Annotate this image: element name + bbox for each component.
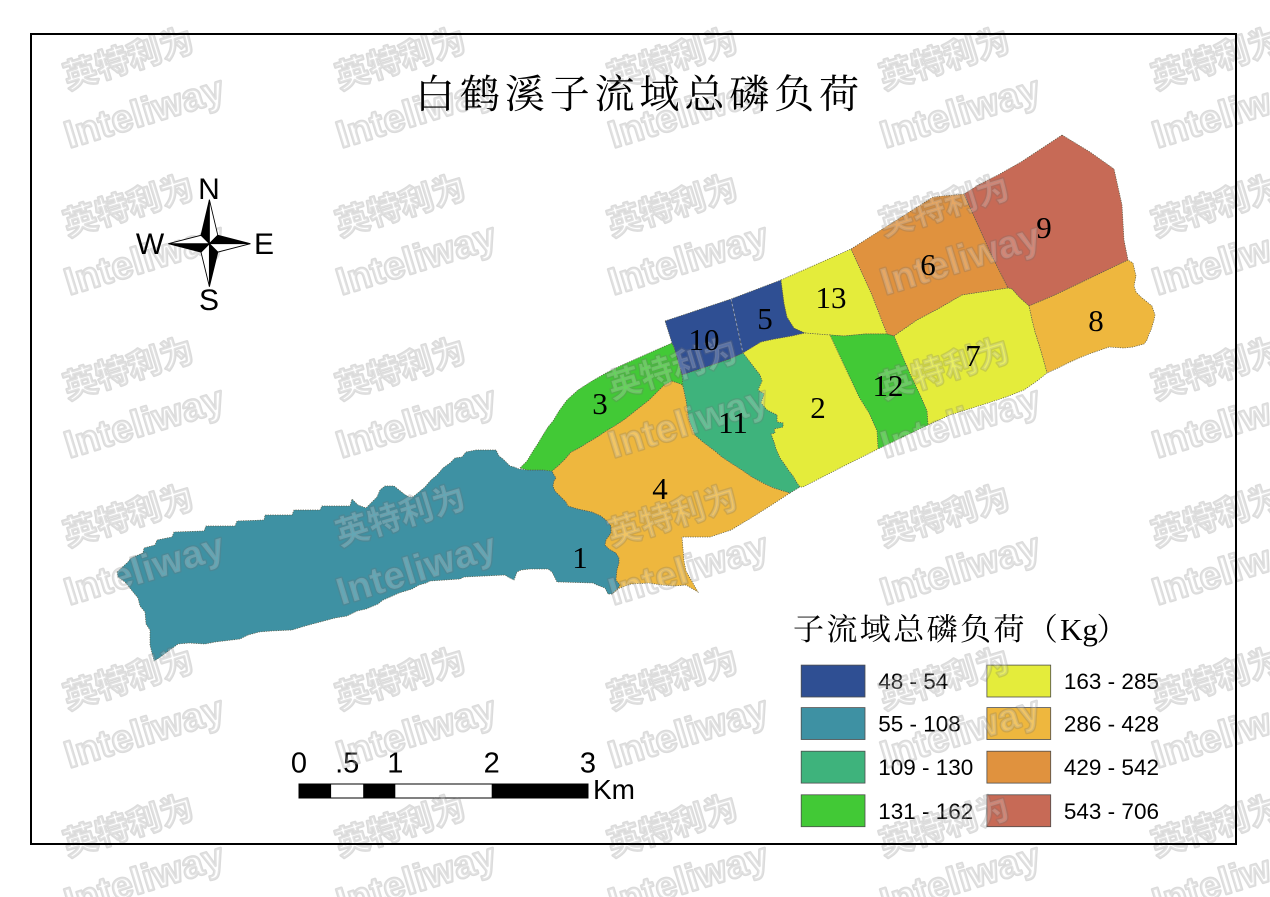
svg-text:10: 10 <box>689 322 720 357</box>
svg-text:Km: Km <box>593 774 635 805</box>
svg-text:Kg: Kg <box>1060 612 1098 647</box>
svg-text:S: S <box>199 284 219 317</box>
svg-text:E: E <box>254 228 274 261</box>
svg-text:429 - 542: 429 - 542 <box>1064 755 1159 780</box>
svg-text:1: 1 <box>572 540 588 575</box>
svg-text:286 - 428: 286 - 428 <box>1064 712 1159 737</box>
svg-text:6: 6 <box>920 247 936 282</box>
svg-text:2: 2 <box>484 748 500 780</box>
svg-text:0: 0 <box>291 748 307 780</box>
svg-text:8: 8 <box>1088 303 1104 338</box>
svg-text:11: 11 <box>718 405 748 440</box>
svg-text:9: 9 <box>1036 210 1052 245</box>
svg-text:2: 2 <box>810 390 826 425</box>
svg-text:13: 13 <box>816 280 847 315</box>
svg-text:3: 3 <box>592 386 608 421</box>
svg-text:W: W <box>136 228 165 261</box>
svg-text:4: 4 <box>652 471 668 506</box>
svg-text:163 - 285: 163 - 285 <box>1064 669 1159 694</box>
svg-text:12: 12 <box>873 368 904 403</box>
svg-text:543 - 706: 543 - 706 <box>1064 799 1159 824</box>
svg-text:N: N <box>198 173 220 206</box>
svg-text:5: 5 <box>757 301 773 336</box>
svg-text:7: 7 <box>965 338 981 373</box>
